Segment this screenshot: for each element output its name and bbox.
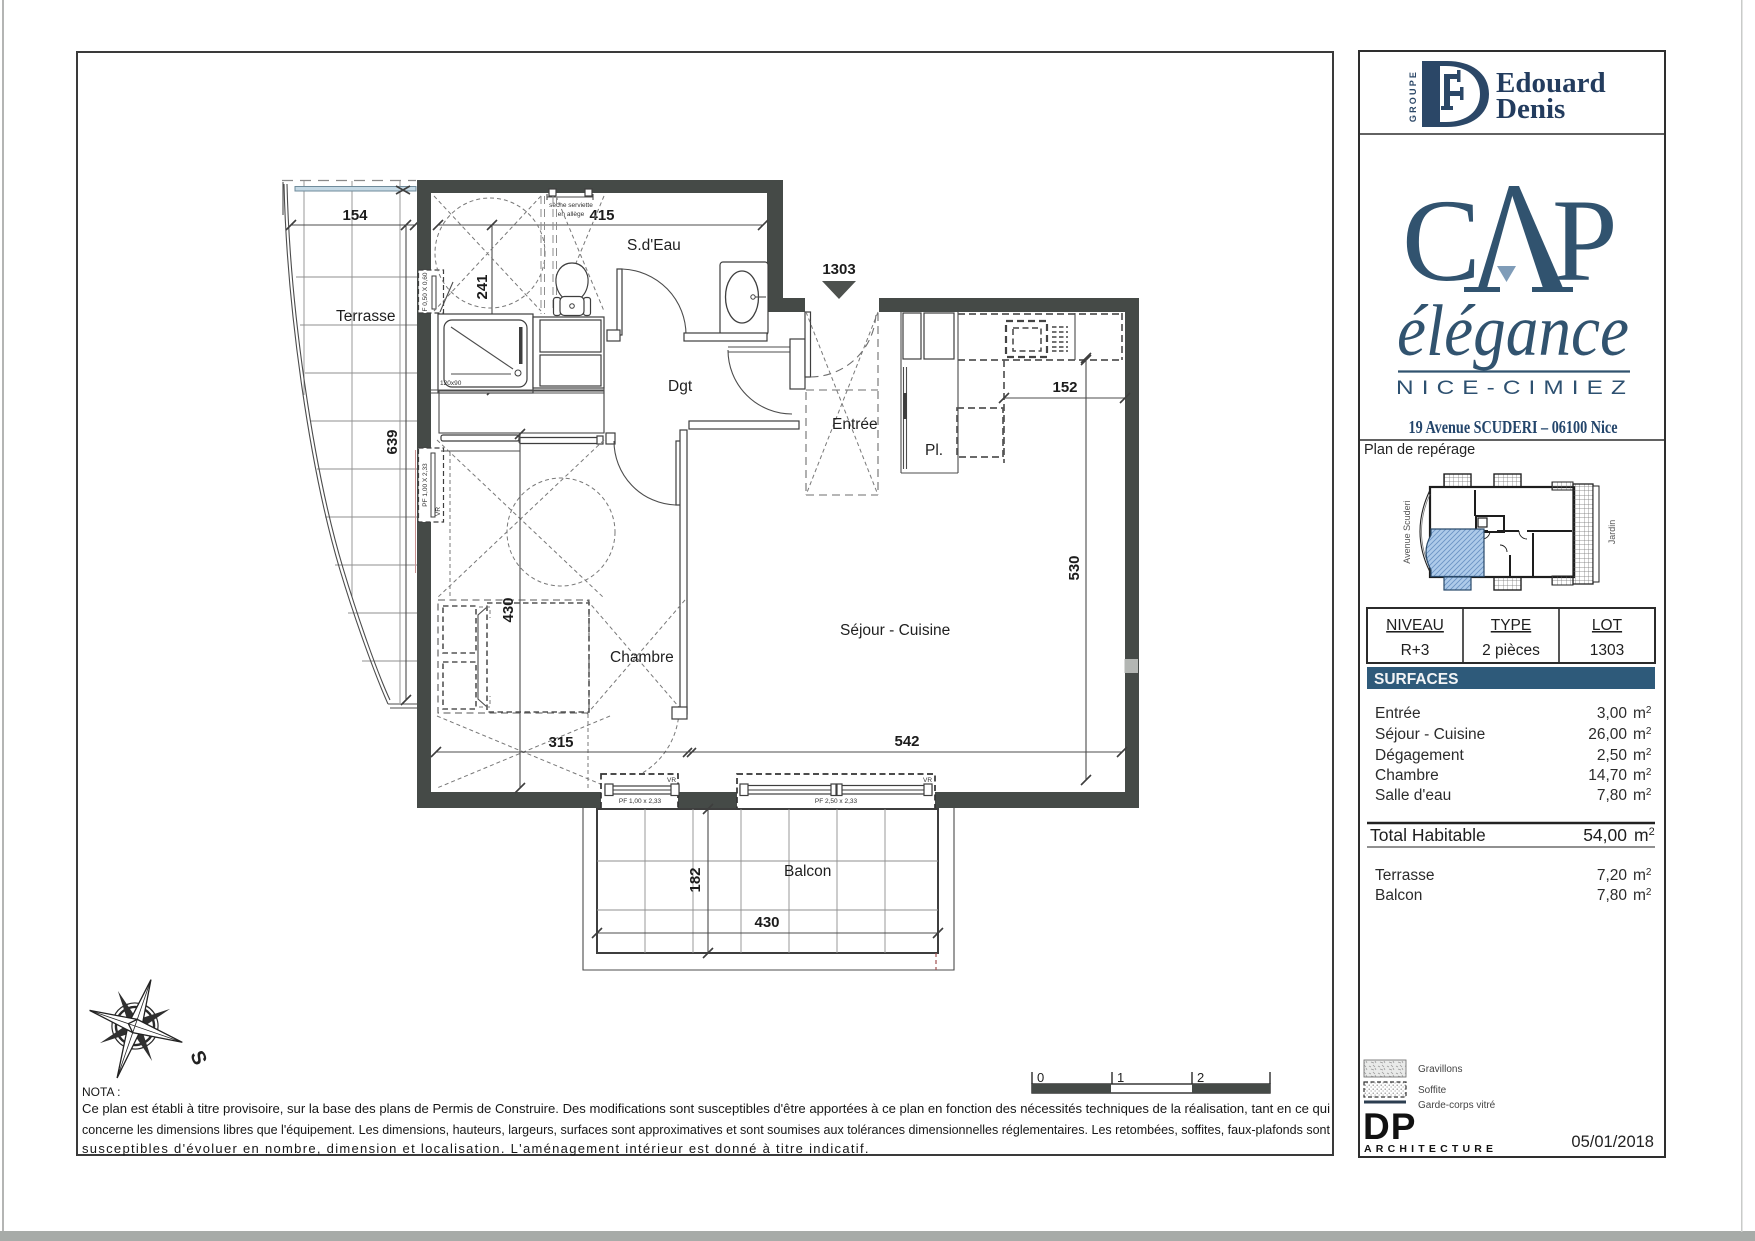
svg-text:Balcon: Balcon	[1375, 887, 1422, 904]
svg-text:Terrasse: Terrasse	[1375, 867, 1434, 884]
svg-text:Denis: Denis	[1496, 93, 1565, 125]
svg-text:Avenue Scuderi: Avenue Scuderi	[1402, 500, 1412, 563]
svg-text:LOT: LOT	[1592, 617, 1623, 634]
svg-text:élégance: élégance	[1397, 290, 1629, 371]
svg-text:2,50: 2,50	[1597, 747, 1628, 764]
svg-text:Séjour - Cuisine: Séjour - Cuisine	[840, 622, 950, 639]
svg-text:Total Habitable: Total Habitable	[1370, 825, 1486, 845]
svg-text:Soffite: Soffite	[1418, 1085, 1447, 1096]
svg-text:C: C	[1402, 175, 1481, 306]
svg-text:NIVEAU: NIVEAU	[1386, 617, 1444, 634]
svg-text:430: 430	[500, 597, 517, 622]
svg-text:54,00: 54,00	[1583, 825, 1627, 845]
svg-text:315: 315	[548, 734, 573, 751]
svg-text:182: 182	[687, 867, 704, 892]
svg-text:Garde-corps vitré: Garde-corps vitré	[1418, 1100, 1496, 1111]
svg-text:P: P	[1552, 175, 1618, 306]
svg-text:Pl.: Pl.	[925, 442, 943, 459]
svg-text:7,20: 7,20	[1597, 867, 1628, 884]
svg-text:TYPE: TYPE	[1491, 617, 1531, 634]
svg-text:VR: VR	[923, 777, 932, 784]
svg-text:Dgt: Dgt	[668, 378, 693, 395]
svg-text:1303: 1303	[822, 261, 855, 278]
svg-text:PF 2,50 x 2,33: PF 2,50 x 2,33	[815, 798, 858, 805]
svg-text:Chambre: Chambre	[610, 649, 674, 666]
svg-text:1303: 1303	[1590, 642, 1624, 659]
svg-text:639: 639	[384, 429, 401, 454]
svg-text:Terrasse: Terrasse	[336, 308, 395, 325]
svg-text:0: 0	[1037, 1070, 1044, 1085]
svg-text:Balcon: Balcon	[784, 863, 831, 880]
svg-text:14,70: 14,70	[1588, 767, 1627, 784]
svg-text:VR: VR	[435, 507, 442, 516]
svg-text:Entrée: Entrée	[832, 416, 878, 433]
svg-text:Dégagement: Dégagement	[1375, 747, 1464, 764]
svg-text:3,00: 3,00	[1597, 705, 1628, 722]
svg-text:Gravillons: Gravillons	[1418, 1064, 1462, 1075]
svg-text:DP: DP	[1363, 1106, 1416, 1147]
svg-text:152: 152	[1052, 379, 1077, 396]
svg-text:sèche serviette: sèche serviette	[549, 202, 593, 209]
svg-text:VR: VR	[667, 777, 676, 784]
svg-text:F 0,50 X 0,60: F 0,50 X 0,60	[422, 272, 429, 311]
svg-text:1: 1	[1117, 1070, 1124, 1085]
svg-text:Plan de repérage: Plan de repérage	[1364, 442, 1475, 458]
svg-text:26,00: 26,00	[1588, 726, 1627, 743]
svg-text:2 pièces: 2 pièces	[1482, 642, 1540, 659]
svg-text:susceptibles d'évoluer en nomb: susceptibles d'évoluer en nombre, dimens…	[82, 1141, 870, 1156]
svg-text:120x90: 120x90	[440, 380, 462, 387]
svg-text:415: 415	[589, 207, 614, 224]
svg-text:05/01/2018: 05/01/2018	[1571, 1133, 1654, 1151]
svg-text:2: 2	[1197, 1070, 1204, 1085]
svg-text:S.d'Eau: S.d'Eau	[627, 237, 681, 254]
svg-text:7,80: 7,80	[1597, 787, 1628, 804]
svg-text:en allège: en allège	[558, 211, 585, 218]
svg-text:542: 542	[894, 733, 919, 750]
svg-text:PF 1,00 x 2,33: PF 1,00 x 2,33	[619, 798, 662, 805]
svg-text:530: 530	[1066, 555, 1083, 580]
svg-text:Salle d'eau: Salle d'eau	[1375, 787, 1451, 804]
svg-text:ARCHITECTURE: ARCHITECTURE	[1364, 1143, 1497, 1155]
svg-text:7,80: 7,80	[1597, 887, 1628, 904]
svg-text:Jardin: Jardin	[1607, 520, 1617, 545]
svg-text:Séjour - Cuisine: Séjour - Cuisine	[1375, 726, 1485, 743]
svg-text:241: 241	[474, 274, 491, 299]
svg-text:Entrée: Entrée	[1375, 705, 1421, 722]
svg-text:430: 430	[754, 914, 779, 931]
svg-text:PF 1,00 X 2,33: PF 1,00 X 2,33	[422, 463, 429, 507]
svg-text:NOTA :: NOTA :	[82, 1085, 120, 1099]
svg-text:154: 154	[342, 207, 368, 224]
svg-text:Ce plan est établi à titre pro: Ce plan est établi à titre provisoire, s…	[82, 1101, 1330, 1116]
svg-text:concerne les dimensions libres: concerne les dimensions libres que l'équ…	[82, 1122, 1330, 1137]
svg-text:GROUPE: GROUPE	[1408, 70, 1418, 122]
svg-text:SURFACES: SURFACES	[1374, 671, 1458, 688]
svg-text:Chambre: Chambre	[1375, 767, 1439, 784]
svg-text:NICE-CIMIEZ: NICE-CIMIEZ	[1396, 377, 1634, 399]
svg-text:R+3: R+3	[1401, 642, 1430, 659]
svg-text:19 Avenue SCUDERI – 06100 Nice: 19 Avenue SCUDERI – 06100 Nice	[1409, 417, 1618, 437]
